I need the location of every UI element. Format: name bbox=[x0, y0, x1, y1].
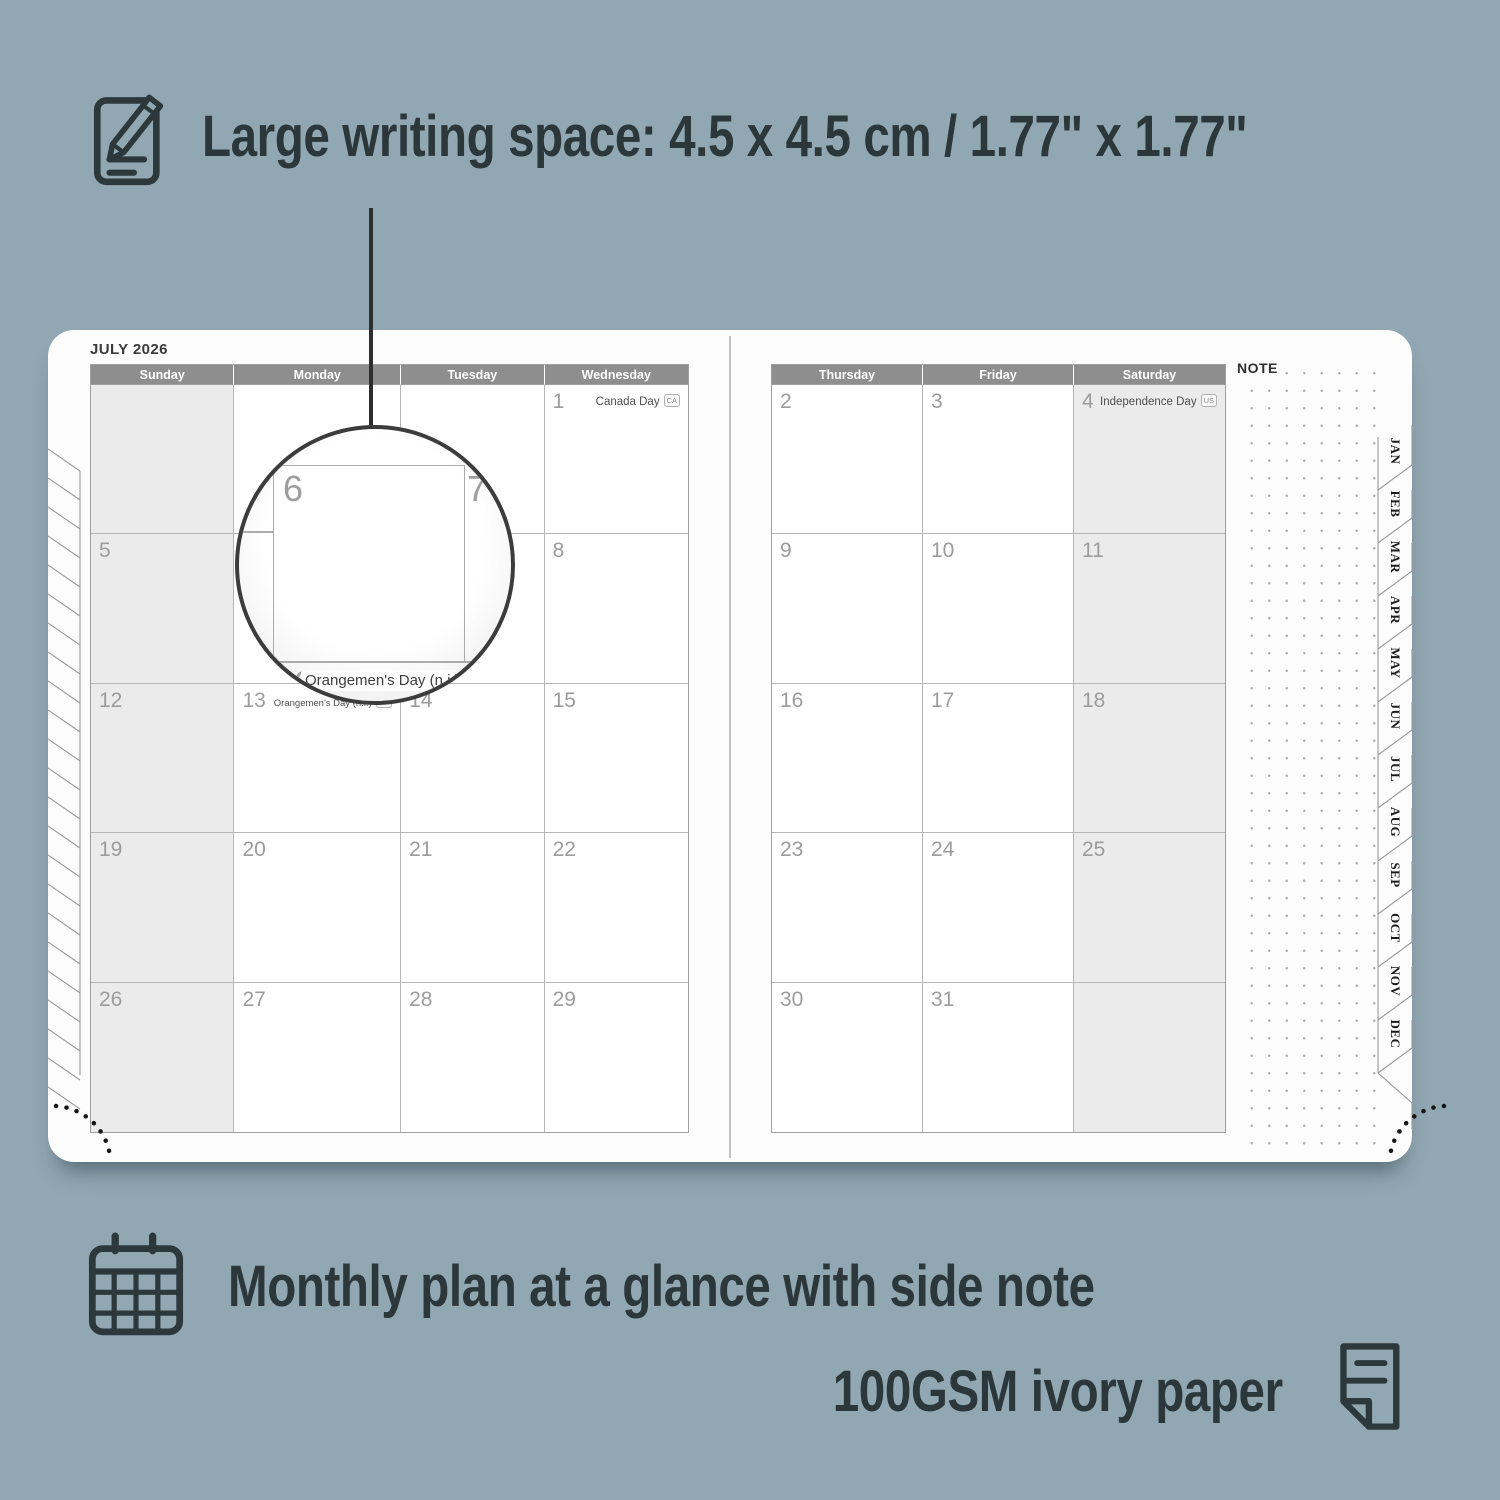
hatch-line bbox=[48, 449, 80, 471]
day-number: 21 bbox=[409, 839, 432, 860]
feature-paper: 100GSM ivory paper bbox=[734, 1363, 1283, 1421]
product-image: Large writing space: 4.5 x 4.5 cm / 1.77… bbox=[0, 0, 1500, 1500]
callout-connector-line bbox=[369, 208, 373, 432]
calendar-cell: 3 bbox=[923, 385, 1074, 534]
hatch-line bbox=[48, 478, 80, 500]
calendar-cell: 25 bbox=[1074, 833, 1225, 982]
hatch-line bbox=[48, 623, 80, 645]
hatch-line bbox=[48, 681, 80, 703]
tab-edge-line bbox=[1378, 677, 1412, 702]
month-tab: FEB bbox=[1388, 491, 1403, 518]
month-tab: MAY bbox=[1388, 647, 1403, 678]
day-number: 31 bbox=[931, 989, 954, 1010]
hatch-line bbox=[48, 797, 80, 819]
calendar-cell: 11 bbox=[1074, 534, 1225, 683]
hatch-line bbox=[48, 942, 80, 964]
holiday-country-badge: CA bbox=[664, 394, 680, 407]
calendar-cell: 13Orangemen's Day (n.i.)UK bbox=[234, 684, 401, 833]
calendar-cell: 23 bbox=[772, 833, 923, 982]
day-header: Thursday bbox=[772, 365, 923, 385]
calendar-cell: 31 bbox=[923, 983, 1074, 1132]
day-header: Friday bbox=[923, 365, 1074, 385]
day-number: 20 bbox=[242, 839, 265, 860]
tab-edge-line bbox=[1378, 465, 1412, 490]
hatch-line bbox=[48, 565, 80, 587]
calendar-icon bbox=[84, 1232, 188, 1336]
calendar-cell: 12 bbox=[91, 684, 234, 833]
hatch-line bbox=[48, 1029, 80, 1051]
hatch-line bbox=[48, 536, 80, 558]
feature-paper-text: 100GSM ivory paper bbox=[833, 1363, 1283, 1421]
day-number: 28 bbox=[409, 989, 432, 1010]
day-number: 3 bbox=[931, 391, 943, 412]
calendar-cell: 20 bbox=[234, 833, 401, 982]
tab-edge-line bbox=[1378, 730, 1412, 755]
day-number: 29 bbox=[553, 989, 576, 1010]
day-number: 16 bbox=[780, 690, 803, 711]
tab-edge-line bbox=[1378, 783, 1412, 808]
calendar-cell: 18 bbox=[1074, 684, 1225, 833]
calendar-cell: 21 bbox=[401, 833, 544, 982]
notepad-pencil-icon bbox=[86, 78, 190, 190]
hatch-line bbox=[48, 710, 80, 732]
day-number: 2 bbox=[780, 391, 792, 412]
calendar-cell: 16 bbox=[772, 684, 923, 833]
hatch-line bbox=[48, 826, 80, 848]
calendar-cell: 2 bbox=[772, 385, 923, 534]
calendar-cell: 9 bbox=[772, 534, 923, 683]
calendar-cell: 17 bbox=[923, 684, 1074, 833]
hatch-line bbox=[48, 507, 80, 529]
corner-stitching bbox=[1380, 1098, 1452, 1164]
day-number: 12 bbox=[99, 690, 122, 711]
holiday-label: Canada DayCA bbox=[596, 391, 680, 408]
calendar-cell: 29 bbox=[545, 983, 688, 1132]
hatch-line bbox=[48, 971, 80, 993]
day-number: 8 bbox=[553, 540, 565, 561]
month-tab: NOV bbox=[1388, 966, 1403, 997]
month-tab: SEP bbox=[1388, 862, 1403, 887]
calendar-cell: 19 bbox=[91, 833, 234, 982]
month-tab: DEC bbox=[1388, 1020, 1403, 1049]
day-header: Saturday bbox=[1074, 365, 1225, 385]
tab-edge-line bbox=[1378, 889, 1412, 914]
day-number: 10 bbox=[931, 540, 954, 561]
month-tabs: JANFEBMARAPRMAYJUNJULAUGSEPOCTNOVDEC bbox=[1372, 425, 1416, 1131]
magnified-row-line bbox=[239, 661, 511, 663]
day-number: 13 bbox=[242, 690, 265, 711]
tab-edge-line bbox=[1378, 518, 1412, 543]
day-number: 1 bbox=[553, 391, 565, 412]
hatch-line bbox=[48, 913, 80, 935]
tab-edge-line bbox=[1378, 995, 1412, 1020]
paper-sheet-icon bbox=[1320, 1336, 1408, 1440]
day-number: 26 bbox=[99, 989, 122, 1010]
magnifier-circle: 6 7 13 Orangemen's Day (n.i.)UK bbox=[235, 425, 515, 705]
calendar-cell: 27 bbox=[234, 983, 401, 1132]
calendar-cell: 8 bbox=[545, 534, 688, 683]
day-number: 9 bbox=[780, 540, 792, 561]
calendar-cell bbox=[91, 385, 234, 534]
day-number: 15 bbox=[553, 690, 576, 711]
hatch-line bbox=[48, 855, 80, 877]
calendar-cell bbox=[1074, 983, 1225, 1132]
calendar-cell: 10 bbox=[923, 534, 1074, 683]
month-tab: MAR bbox=[1388, 541, 1403, 574]
day-number: 24 bbox=[931, 839, 954, 860]
day-number: 5 bbox=[99, 540, 111, 561]
month-tab: JUN bbox=[1388, 703, 1403, 730]
calendar-cell: 4Independence DayUS bbox=[1074, 385, 1225, 534]
month-tab: APR bbox=[1388, 596, 1403, 624]
feature-writing-space: Large writing space: 4.5 x 4.5 cm / 1.77… bbox=[202, 108, 1477, 166]
magnified-day-number: 6 bbox=[283, 471, 303, 507]
note-section-label: NOTE bbox=[1237, 360, 1283, 378]
month-title: JULY 2026 bbox=[90, 341, 168, 358]
page-edge-hatching bbox=[48, 445, 82, 1117]
calendar-cell: 15 bbox=[545, 684, 688, 833]
page-spine bbox=[729, 336, 731, 1158]
note-dot-grid bbox=[1237, 372, 1377, 1158]
day-header: Wednesday bbox=[545, 365, 688, 385]
tab-edge-line bbox=[1378, 942, 1412, 967]
month-tab: JUL bbox=[1388, 756, 1403, 782]
tab-edge-line bbox=[1378, 624, 1412, 649]
day-header: Tuesday bbox=[401, 365, 544, 385]
magnified-holiday-text: Orangemen's Day (n.i.) bbox=[305, 672, 460, 689]
calendar-right-page: ThursdayFridaySaturday234Independence Da… bbox=[771, 364, 1226, 1133]
feature-monthly-plan-text: Monthly plan at a glance with side note bbox=[228, 1258, 1095, 1316]
calendar-cell: 24 bbox=[923, 833, 1074, 982]
hatch-line bbox=[48, 768, 80, 790]
calendar-cell: 28 bbox=[401, 983, 544, 1132]
day-number: 17 bbox=[931, 690, 954, 711]
tab-edge-line bbox=[1378, 571, 1412, 596]
calendar-cell: 5 bbox=[91, 534, 234, 683]
feature-monthly-plan: Monthly plan at a glance with side note bbox=[228, 1258, 1285, 1316]
feature-writing-space-text: Large writing space: 4.5 x 4.5 cm / 1.77… bbox=[202, 108, 1247, 166]
calendar-cell: 22 bbox=[545, 833, 688, 982]
tab-edge-line bbox=[1378, 1048, 1412, 1073]
month-tab: OCT bbox=[1388, 913, 1403, 943]
day-header: Monday bbox=[234, 365, 401, 385]
hatch-line bbox=[48, 739, 80, 761]
hatch-line bbox=[48, 652, 80, 674]
day-number: 23 bbox=[780, 839, 803, 860]
hatch-line bbox=[48, 594, 80, 616]
day-number: 11 bbox=[1082, 540, 1104, 561]
magnified-grid-line-horizontal bbox=[239, 531, 273, 533]
day-number: 18 bbox=[1082, 690, 1105, 711]
holiday-country-badge: US bbox=[1201, 394, 1217, 407]
day-number: 19 bbox=[99, 839, 122, 860]
calendar-cell: 1Canada DayCA bbox=[545, 385, 688, 534]
tab-edge-line bbox=[1378, 836, 1412, 861]
day-header: Sunday bbox=[91, 365, 234, 385]
hatch-line bbox=[48, 1000, 80, 1022]
calendar-cell: 14 bbox=[401, 684, 544, 833]
day-number: 30 bbox=[780, 989, 803, 1010]
month-tab: JAN bbox=[1388, 438, 1403, 465]
day-number: 4 bbox=[1082, 391, 1094, 412]
day-number: 27 bbox=[242, 989, 265, 1010]
magnified-grid-line-vertical bbox=[467, 429, 469, 465]
calendar-cell: 30 bbox=[772, 983, 923, 1132]
day-number: 25 bbox=[1082, 839, 1105, 860]
month-tab: AUG bbox=[1388, 807, 1403, 837]
day-number: 22 bbox=[553, 839, 576, 860]
hatch-line bbox=[48, 1058, 80, 1080]
hatch-line bbox=[48, 884, 80, 906]
holiday-country-badge: UK bbox=[464, 674, 480, 687]
magnified-day-number: 7 bbox=[467, 471, 487, 507]
magnified-holiday-label: Orangemen's Day (n.i.)UK bbox=[301, 670, 484, 691]
holiday-label: Independence DayUS bbox=[1100, 391, 1217, 408]
corner-stitching bbox=[48, 1098, 120, 1164]
